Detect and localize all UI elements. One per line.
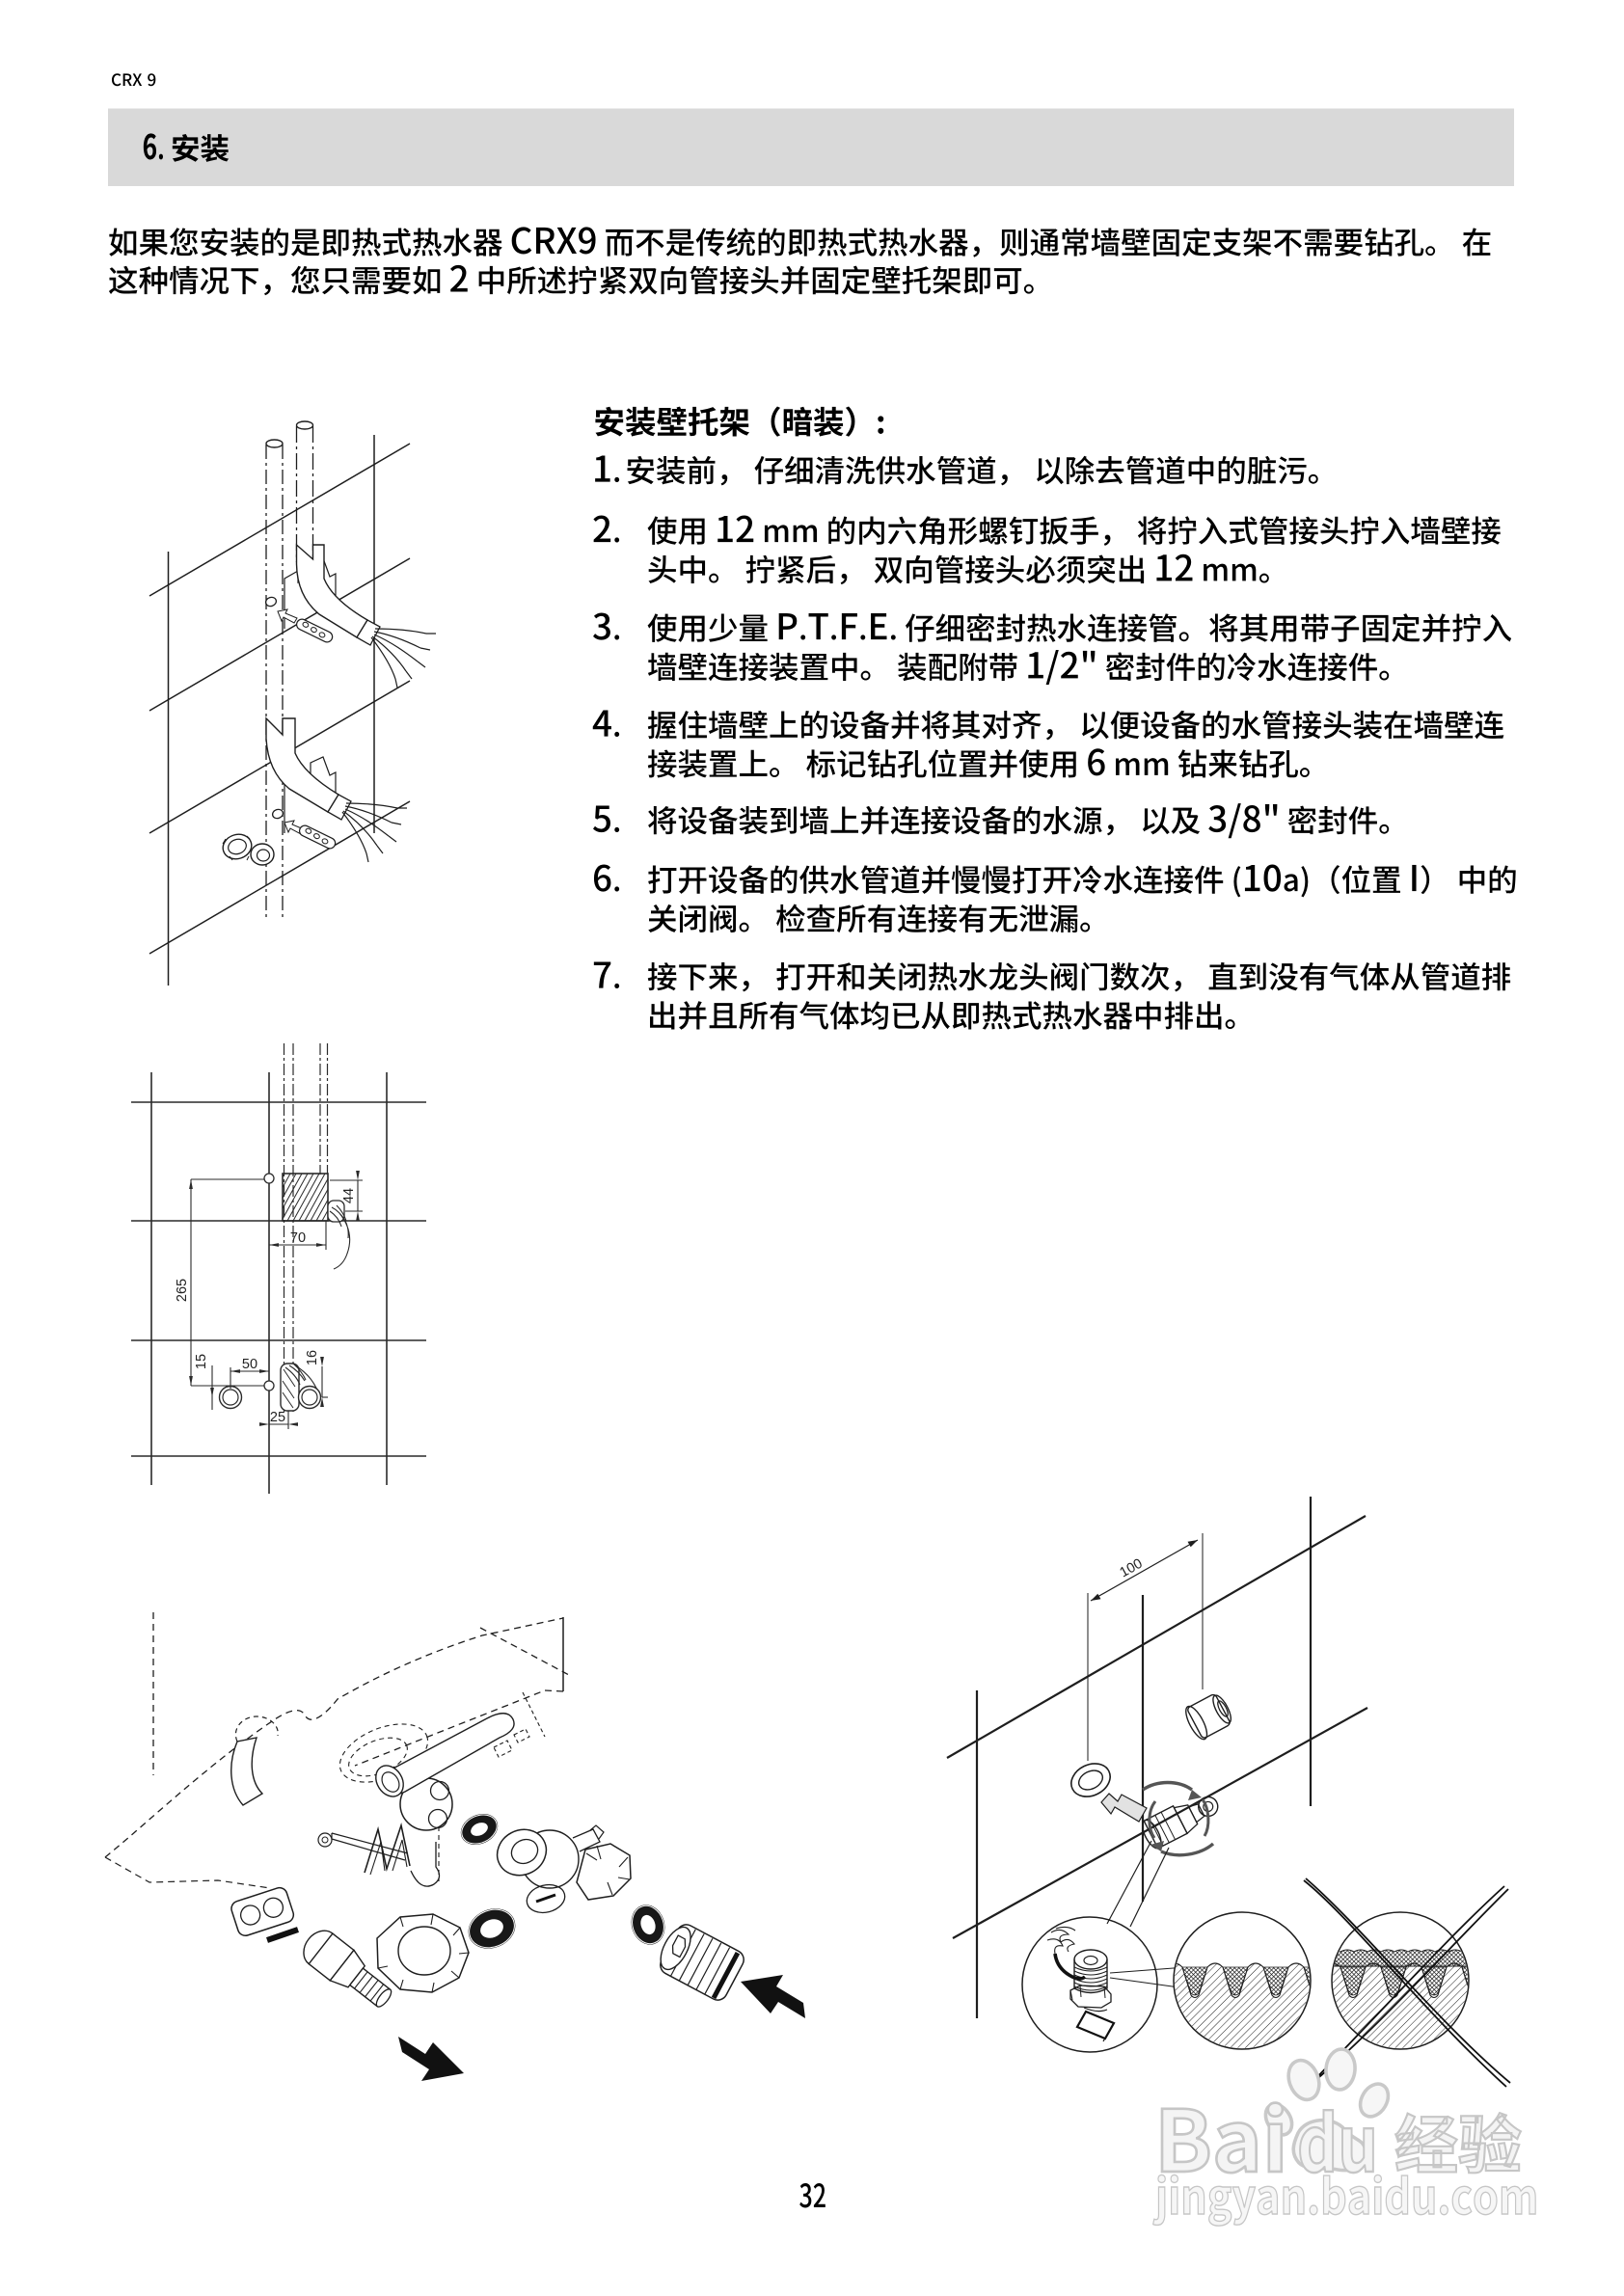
svg-text:265: 265	[175, 1279, 190, 1302]
svg-text:70: 70	[290, 1230, 306, 1246]
svg-text:100: 100	[1118, 1556, 1146, 1581]
svg-text:15: 15	[194, 1354, 209, 1369]
svg-text:16: 16	[305, 1350, 320, 1365]
svg-text:25: 25	[270, 1410, 285, 1425]
svg-text:44: 44	[341, 1188, 357, 1203]
svg-text:50: 50	[242, 1357, 257, 1372]
